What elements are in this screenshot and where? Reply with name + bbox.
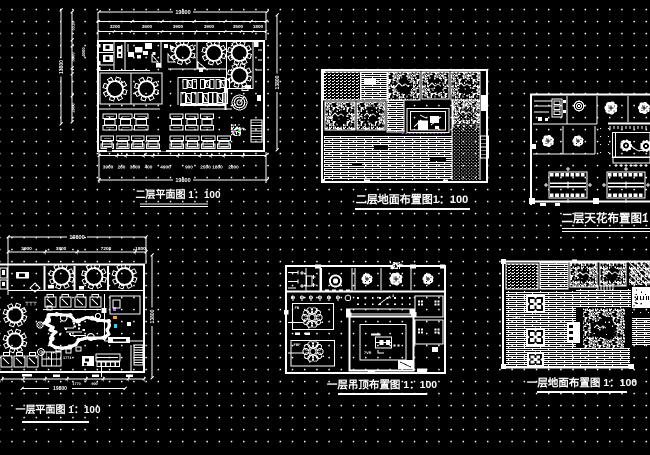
svg-text:FBF: FBF <box>294 343 302 347</box>
svg-text:4900: 4900 <box>160 165 171 170</box>
svg-text:400: 400 <box>145 165 153 170</box>
svg-text:1770: 1770 <box>72 382 80 386</box>
svg-text:3200: 3200 <box>110 24 121 29</box>
svg-text:3900: 3900 <box>204 24 215 29</box>
svg-text:丅丅丅: 丅丅丅 <box>25 300 37 306</box>
svg-text:一层平面图 1：100: 一层平面图 1：100 <box>15 404 100 416</box>
svg-text:1771: 1771 <box>63 356 71 360</box>
svg-text:4000: 4000 <box>81 47 86 57</box>
svg-text:一层吊顶布置图 1：100: 一层吊顶布置图 1：100 <box>327 378 437 391</box>
svg-text:2800: 2800 <box>71 103 76 113</box>
svg-text:3600: 3600 <box>130 165 141 170</box>
svg-text:二层平面图 1：100: 二层平面图 1：100 <box>135 189 220 201</box>
svg-text:19800: 19800 <box>69 235 84 241</box>
svg-text:3800: 3800 <box>56 246 67 252</box>
svg-text:3900: 3900 <box>103 165 114 170</box>
svg-text:3900: 3900 <box>173 24 184 29</box>
svg-text:3000: 3000 <box>71 52 76 62</box>
svg-text:3600: 3600 <box>142 24 153 29</box>
svg-text:900: 900 <box>185 165 193 170</box>
svg-text:3: 3 <box>392 294 394 298</box>
svg-text:一层地面布置图 1：100: 一层地面布置图 1：100 <box>527 376 637 389</box>
svg-text:19800: 19800 <box>175 178 190 184</box>
svg-text:1800: 1800 <box>212 165 223 170</box>
svg-text:二层地面布置图1：100: 二层地面布置图1：100 <box>356 192 468 206</box>
svg-text:7200: 7200 <box>101 246 112 252</box>
svg-text:19800: 19800 <box>53 386 67 392</box>
svg-text:FB: FB <box>295 306 300 310</box>
svg-text:13800: 13800 <box>59 60 65 74</box>
svg-text:3500: 3500 <box>233 24 244 29</box>
svg-text:7VR: 7VR <box>364 351 372 355</box>
svg-text:二层天花布置图1: 二层天花布置图1 <box>562 211 649 225</box>
svg-text:13800: 13800 <box>275 75 281 89</box>
svg-text:900: 900 <box>91 382 97 386</box>
svg-text:3900: 3900 <box>21 246 32 252</box>
svg-text:260: 260 <box>118 165 126 170</box>
svg-text:19800: 19800 <box>175 10 190 16</box>
svg-text:2500: 2500 <box>200 165 211 170</box>
svg-text:3310: 3310 <box>71 21 76 31</box>
svg-text:1771: 1771 <box>512 316 520 320</box>
svg-text:1800: 1800 <box>135 246 146 252</box>
svg-text:1800: 1800 <box>253 24 264 29</box>
svg-text:13800: 13800 <box>150 309 156 323</box>
svg-text:2800: 2800 <box>228 165 239 170</box>
